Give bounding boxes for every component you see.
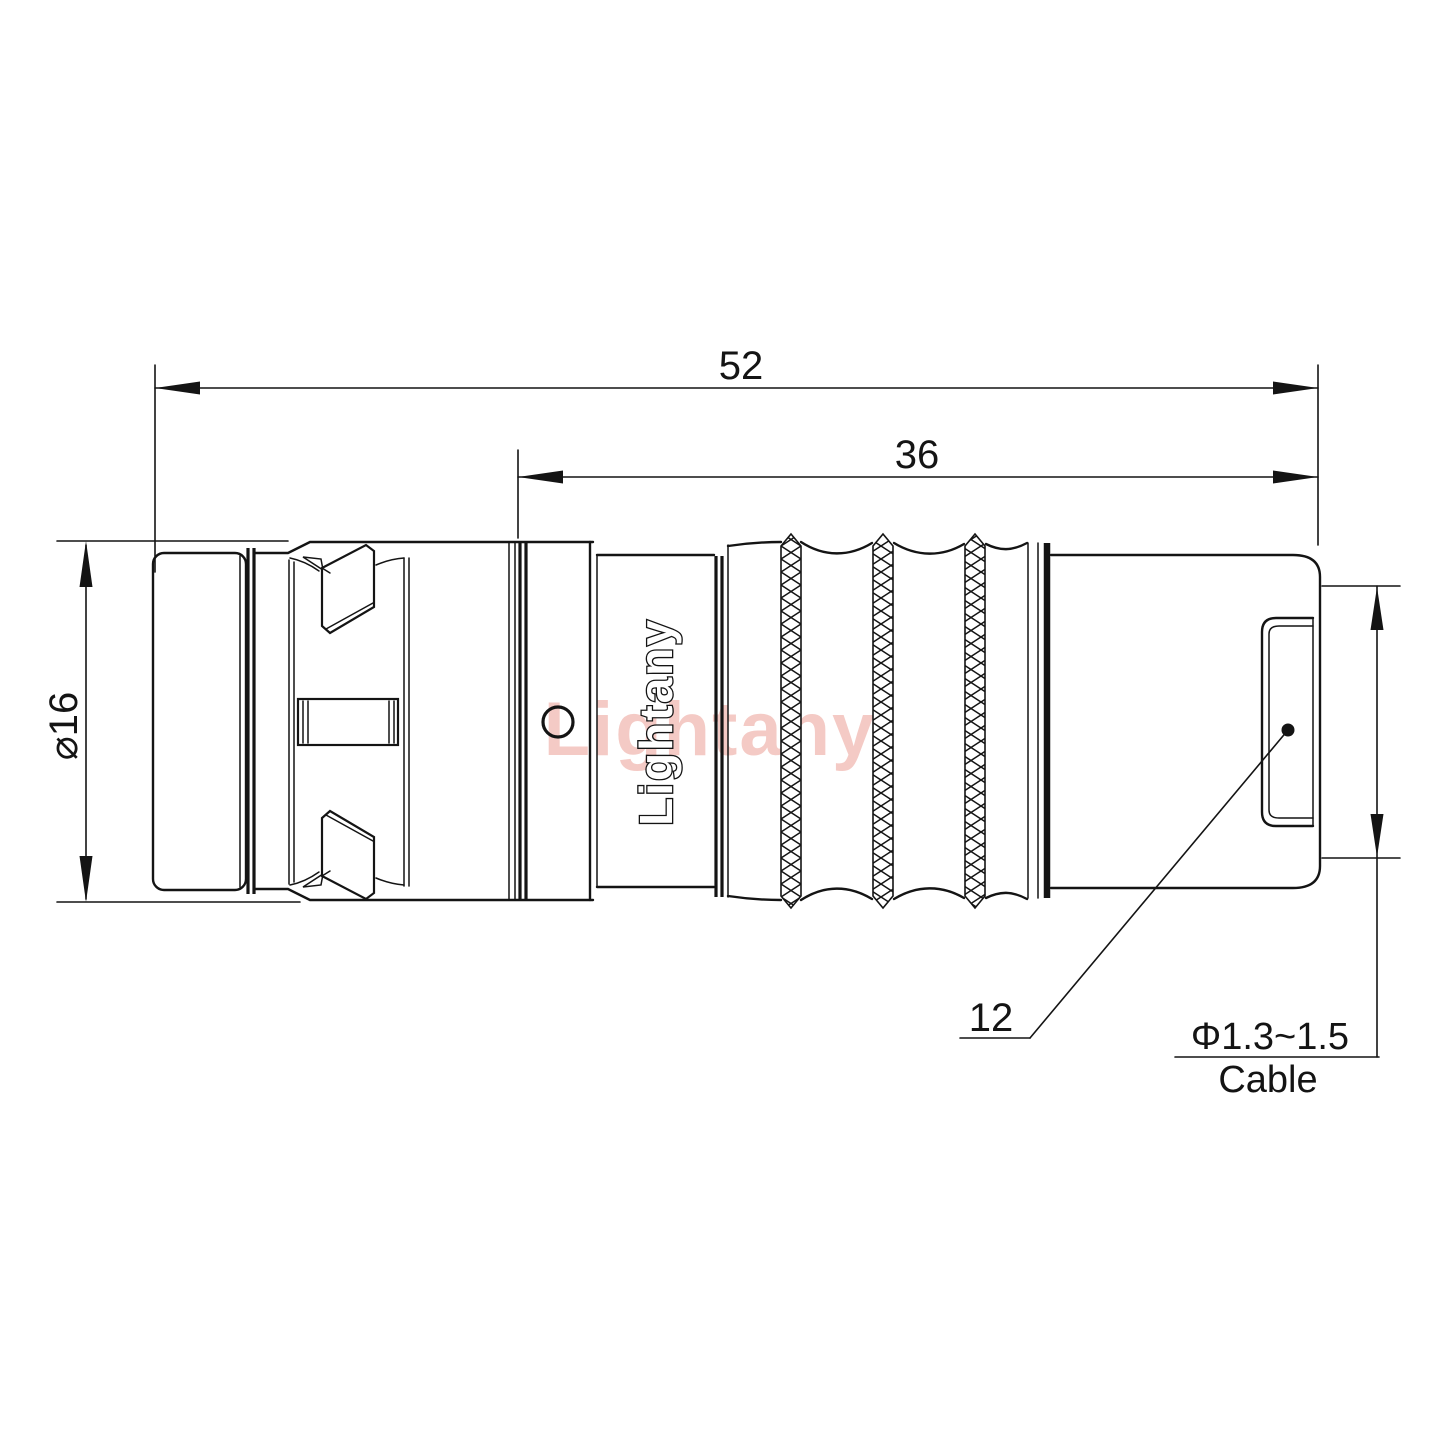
separator-band	[248, 548, 254, 894]
cable-word-label: Cable	[1218, 1059, 1317, 1101]
dimension-shell-diameter: ⌀16	[42, 541, 300, 902]
dim-12-label: 12	[969, 996, 1014, 1040]
dim-52-label: 52	[719, 344, 764, 388]
key-block-top	[322, 545, 374, 633]
watermark-text: Lightany	[544, 687, 877, 772]
knurl-ring-3	[965, 534, 985, 908]
dimension-overall-length: 52	[155, 344, 1318, 572]
dim-36-label: 36	[895, 433, 940, 477]
cable-diameter-label: Φ1.3~1.5	[1191, 1016, 1349, 1058]
latch-bar	[298, 699, 398, 745]
knurl-ring-1	[781, 534, 801, 908]
dimension-cable-diameter: Φ1.3~1.5 Cable	[1175, 586, 1400, 1101]
drawing-canvas: Lightany	[0, 0, 1440, 1440]
knurl-ring-2	[873, 534, 893, 908]
rear-barrel	[1051, 555, 1320, 888]
front-cap	[153, 553, 246, 890]
transition-ring	[1028, 543, 1047, 898]
dim-d16-label: ⌀16	[42, 692, 86, 761]
connector-drawing-svg: Lightany	[0, 0, 1440, 1440]
logo-text: Lightany	[630, 618, 682, 826]
key-block-bottom	[322, 811, 374, 899]
dimension-rear-nut: 12	[960, 730, 1288, 1040]
dimension-body-length: 36	[518, 433, 1318, 538]
